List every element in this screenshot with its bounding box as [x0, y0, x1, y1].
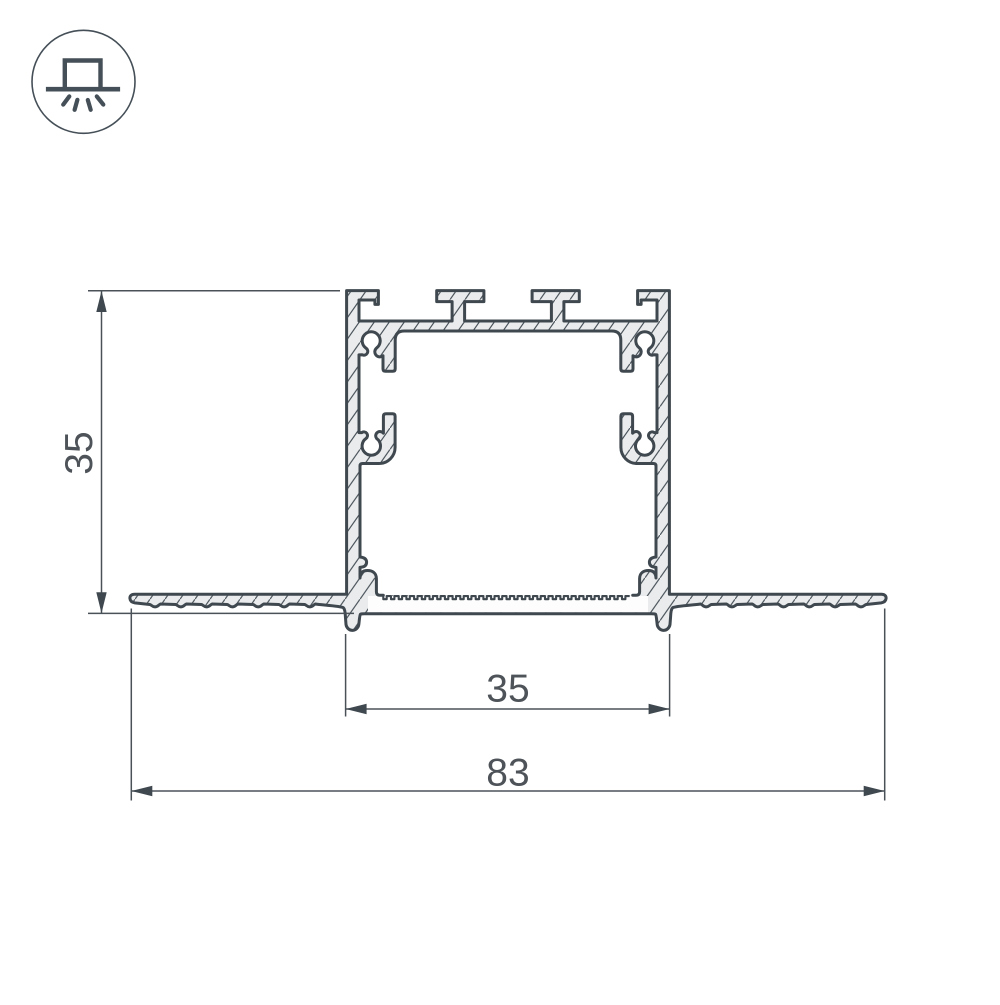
svg-text:83: 83: [486, 752, 529, 795]
svg-text:35: 35: [486, 668, 529, 711]
svg-text:35: 35: [58, 431, 101, 474]
